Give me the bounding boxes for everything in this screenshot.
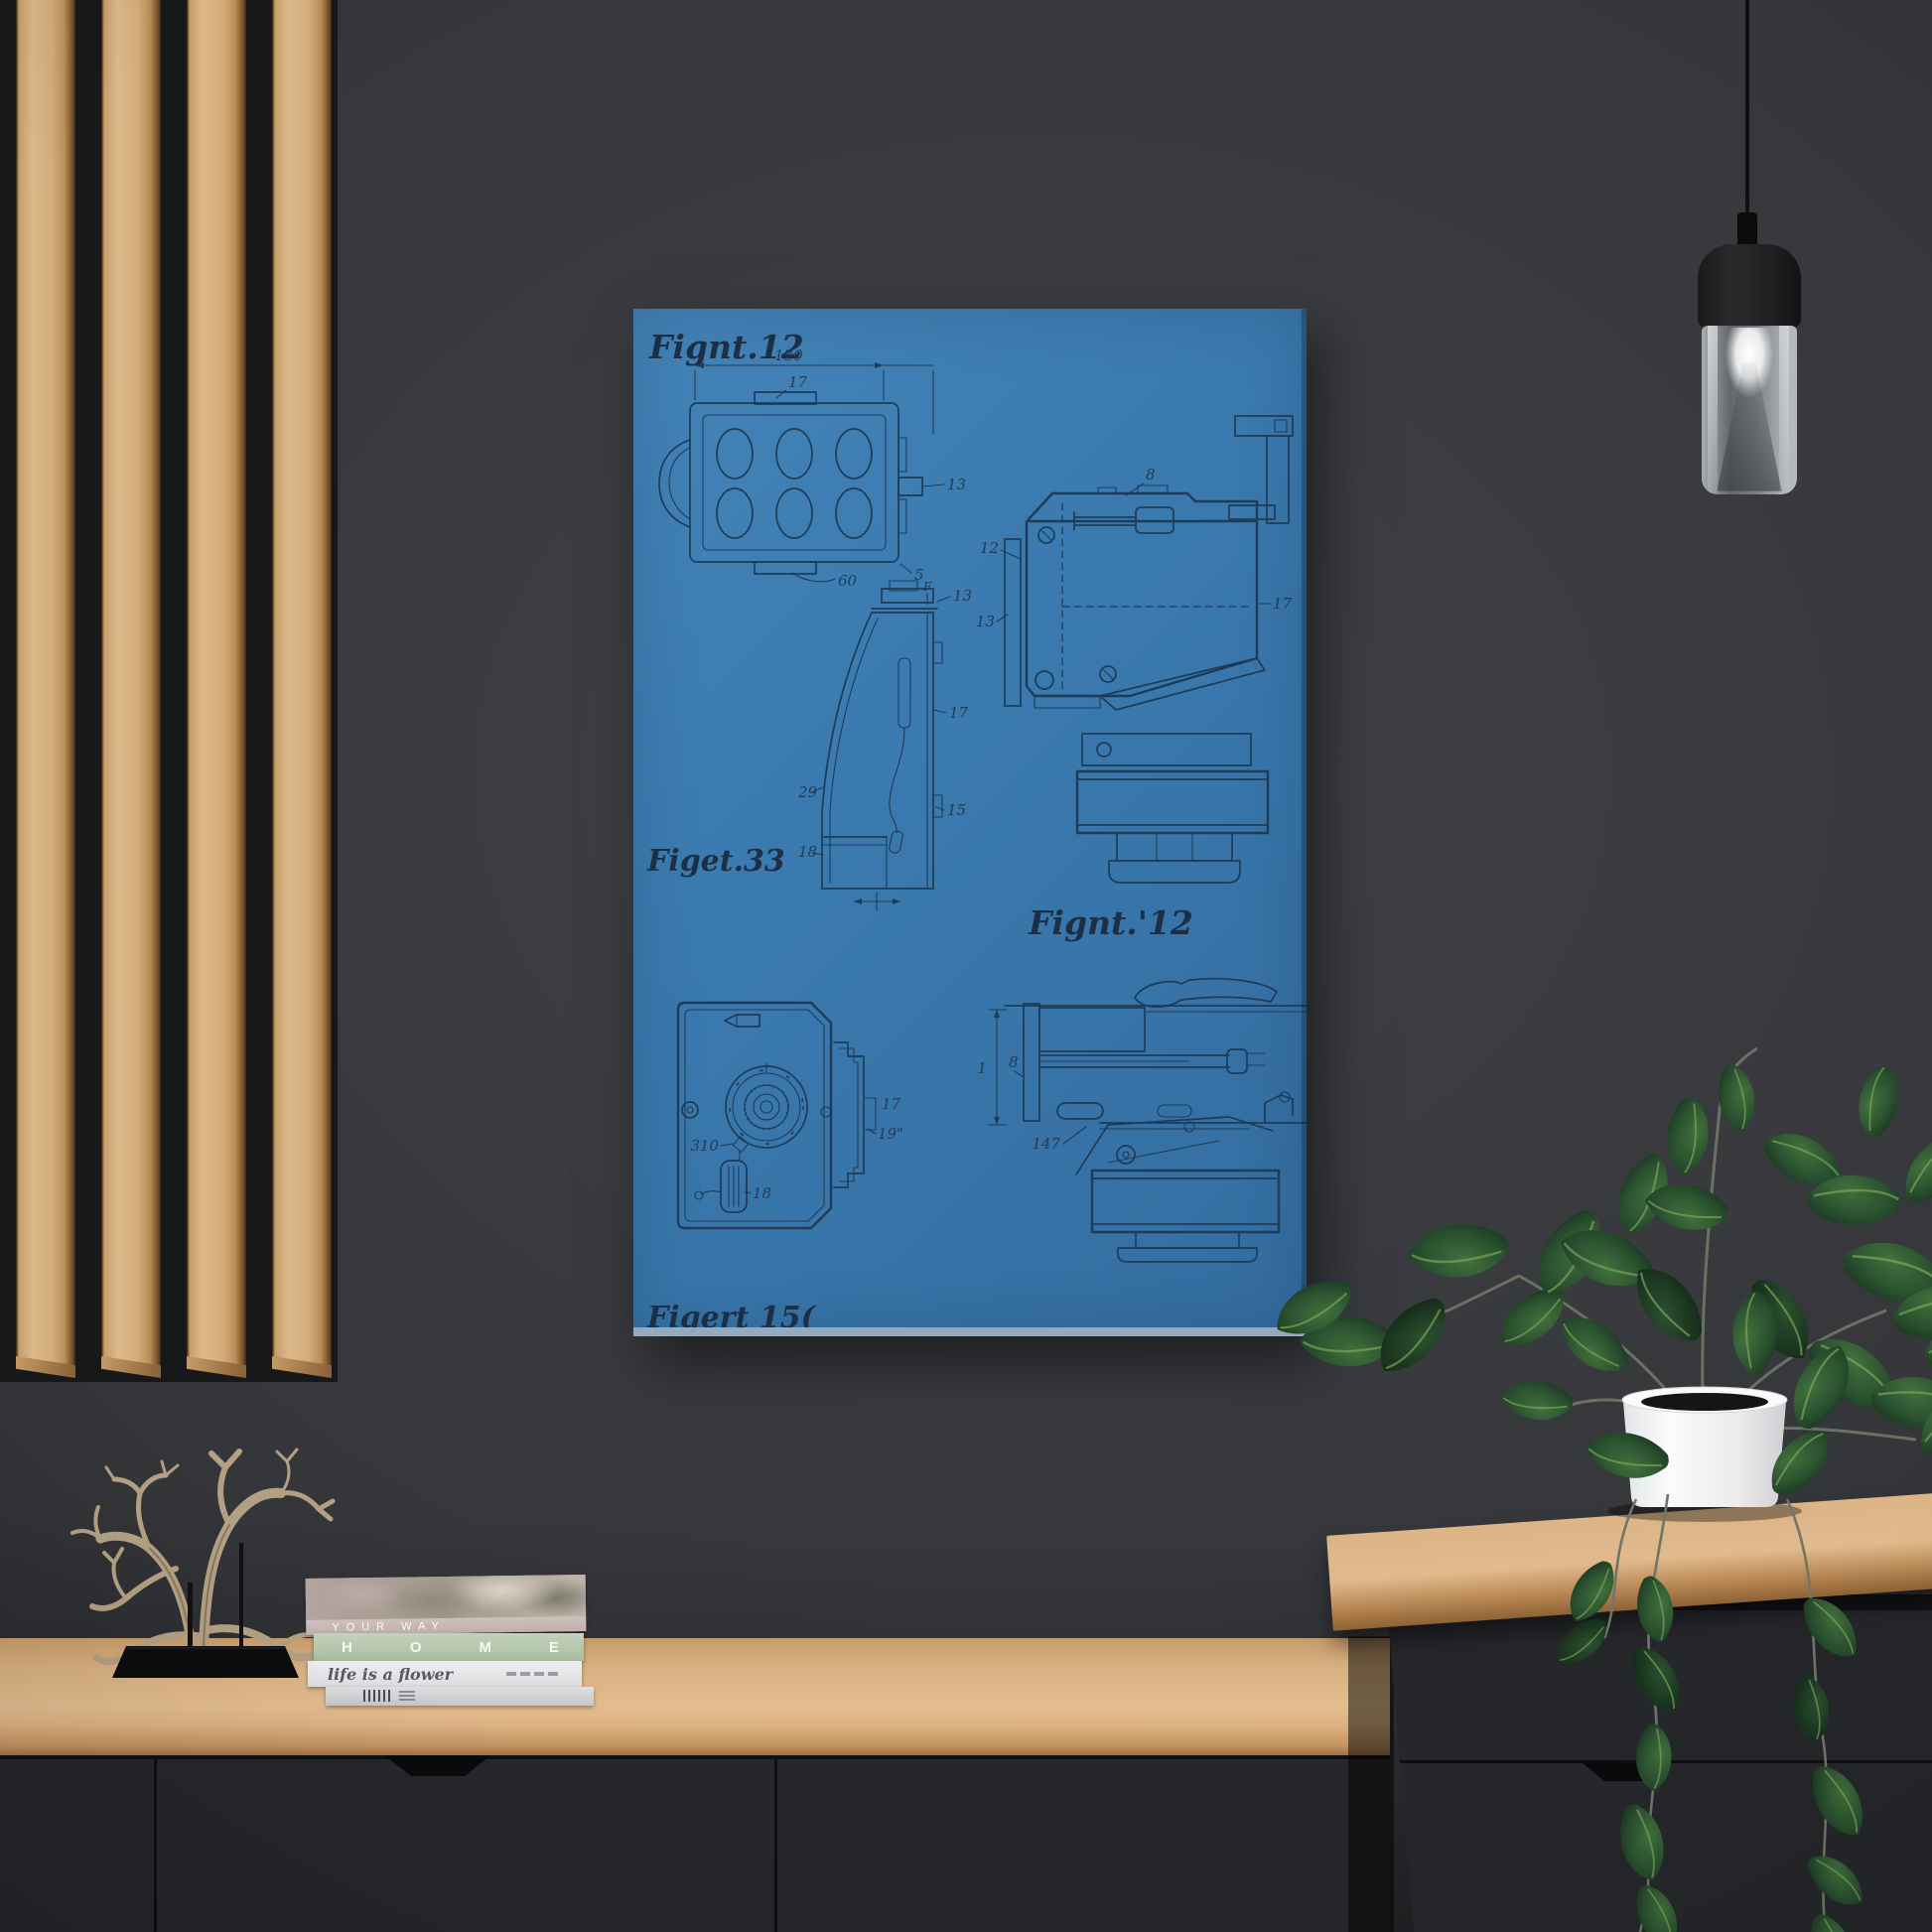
ref-17: 17: [1273, 595, 1293, 613]
ref-19in: 19": [878, 1125, 903, 1143]
ref-F: F: [922, 580, 932, 594]
slat-endcap: [16, 1356, 75, 1378]
book-title: YOUR WAY: [332, 1620, 446, 1634]
ref-17: 17: [788, 373, 808, 391]
dim-width: 130: [774, 346, 803, 364]
sculpture-rod: [188, 1583, 193, 1648]
spine-marks: [363, 1690, 391, 1702]
slat-endcap: [101, 1356, 161, 1378]
ref-18: 18: [753, 1184, 771, 1202]
wood-slat: [272, 0, 332, 1366]
wood-slat: [187, 0, 246, 1366]
figure-label: Fignt.'12: [1028, 903, 1193, 942]
glass-highlight: [1708, 326, 1718, 494]
book-author-mark: [506, 1672, 558, 1676]
potted-plant: [1271, 1042, 1932, 1932]
book-home[interactable]: HOME: [314, 1633, 584, 1661]
interior-scene: Fignt.12: [0, 0, 1932, 1932]
ref-60: 60: [838, 572, 858, 590]
figure-mechanism: 1 8 147: [977, 979, 1307, 1262]
ref-13: 13: [947, 476, 966, 493]
ref-29: 29: [797, 783, 818, 801]
ref-147: 147: [1032, 1135, 1060, 1153]
ref-18: 18: [798, 843, 817, 861]
drawer-seam: [154, 1755, 157, 1932]
figure-dial-plate: 310 18 17 19": [678, 1003, 903, 1228]
ref-310: 310: [690, 1137, 719, 1155]
book-life-is-a-flower[interactable]: life is a flower: [308, 1661, 582, 1687]
ref-1: 1: [977, 1059, 987, 1077]
glass-highlight: [1779, 326, 1789, 494]
drawer-gap: [0, 1755, 1390, 1759]
driftwood-sculpture: [55, 1398, 352, 1696]
drawer-seam: [774, 1755, 777, 1932]
sculpture-base: [112, 1646, 299, 1678]
blueprint-poster: Fignt.12: [633, 309, 1307, 1336]
wood-slat-panel: [0, 0, 338, 1382]
book-your-way[interactable]: YOUR WAY: [306, 1575, 587, 1635]
figure-wedge-view: Figet.33 F: [646, 580, 972, 910]
spine-marks: [399, 1691, 415, 1701]
ref-13: 13: [953, 587, 972, 605]
ref-17: 17: [949, 704, 969, 722]
wood-slat: [16, 0, 75, 1366]
ref-8: 8: [1146, 466, 1156, 483]
ref-8: 8: [1009, 1053, 1019, 1071]
lamp-cap: [1698, 244, 1801, 328]
wood-slat: [101, 0, 161, 1366]
lamp-glass-shade: [1702, 326, 1797, 494]
poster-canvas-edge: [633, 1327, 1307, 1336]
book-bottom[interactable]: [326, 1687, 594, 1706]
figure-camera-side: Fignt.'12: [976, 416, 1293, 942]
ref-17: 17: [882, 1095, 901, 1113]
ref-13: 13: [976, 613, 995, 630]
book-title: HOME: [314, 1639, 617, 1656]
sideboard-drawers: [0, 1755, 1390, 1932]
slat-endcap: [187, 1356, 246, 1378]
sculpture-rod: [239, 1543, 243, 1648]
figure-label: Figet.33: [646, 844, 785, 879]
ref-15: 15: [947, 801, 966, 819]
book-title: life is a flower: [308, 1665, 453, 1684]
figure-top-view: Fignt.12: [648, 328, 966, 590]
book-cover-photo: [306, 1575, 587, 1620]
patent-drawing: Fignt.12: [633, 309, 1307, 1336]
ref-12: 12: [980, 539, 999, 557]
slat-endcap: [272, 1356, 332, 1378]
